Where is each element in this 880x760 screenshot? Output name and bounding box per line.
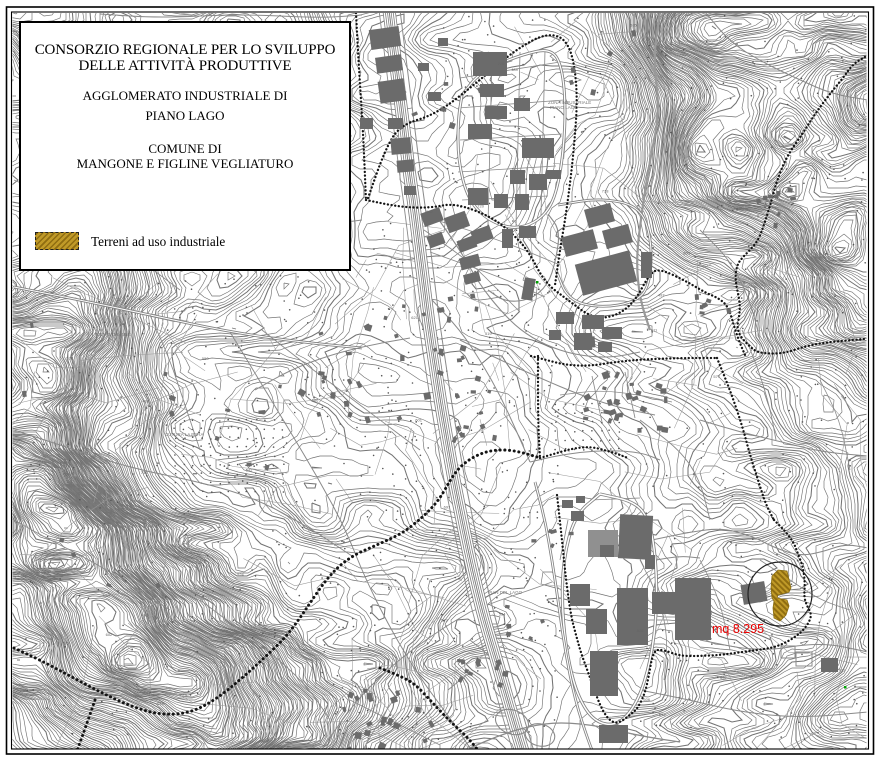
svg-text:692: 692 (720, 675, 727, 680)
svg-text:629: 629 (180, 693, 187, 698)
svg-text:493: 493 (142, 613, 149, 618)
svg-text:534: 534 (499, 612, 506, 617)
svg-text:532: 532 (426, 209, 433, 214)
svg-text:PIANO LAGO: PIANO LAGO (550, 105, 578, 110)
svg-text:497: 497 (658, 293, 665, 298)
svg-text:550: 550 (202, 356, 209, 361)
svg-text:573: 573 (441, 618, 448, 623)
svg-text:488: 488 (142, 398, 149, 403)
svg-text:577: 577 (713, 374, 720, 379)
svg-text:730: 730 (838, 668, 845, 673)
svg-text:CUTURA LA PERA: CUTURA LA PERA (165, 432, 204, 437)
svg-text:726: 726 (498, 61, 505, 66)
svg-text:676: 676 (157, 701, 164, 706)
svg-text:524: 524 (237, 572, 244, 577)
svg-text:718: 718 (602, 189, 609, 194)
svg-text:723: 723 (114, 297, 121, 302)
svg-text:736: 736 (62, 640, 69, 645)
svg-text:PIAN DEL LAGO: PIAN DEL LAGO (488, 590, 523, 595)
svg-text:720: 720 (477, 204, 484, 209)
svg-text:601: 601 (415, 418, 422, 423)
svg-text:519: 519 (485, 331, 492, 336)
svg-text:542: 542 (246, 468, 253, 473)
svg-text:663: 663 (63, 471, 70, 476)
svg-text:736: 736 (141, 470, 148, 475)
svg-text:686: 686 (312, 397, 319, 402)
svg-text:697: 697 (444, 505, 451, 510)
svg-text:528: 528 (66, 356, 73, 361)
svg-text:603: 603 (683, 251, 690, 256)
svg-text:606: 606 (643, 697, 650, 702)
svg-text:588: 588 (103, 593, 110, 598)
svg-text:TORRE GRANDE: TORRE GRANDE (95, 332, 131, 337)
svg-text:621: 621 (411, 315, 418, 320)
svg-text:489: 489 (259, 645, 266, 650)
svg-text:693: 693 (659, 712, 666, 717)
svg-text:mq 8.295: mq 8.295 (712, 622, 764, 636)
svg-text:611: 611 (651, 328, 658, 333)
svg-text:535: 535 (630, 22, 637, 27)
svg-text:528: 528 (637, 628, 644, 633)
svg-text:602: 602 (106, 632, 113, 637)
svg-text:489: 489 (511, 67, 518, 72)
